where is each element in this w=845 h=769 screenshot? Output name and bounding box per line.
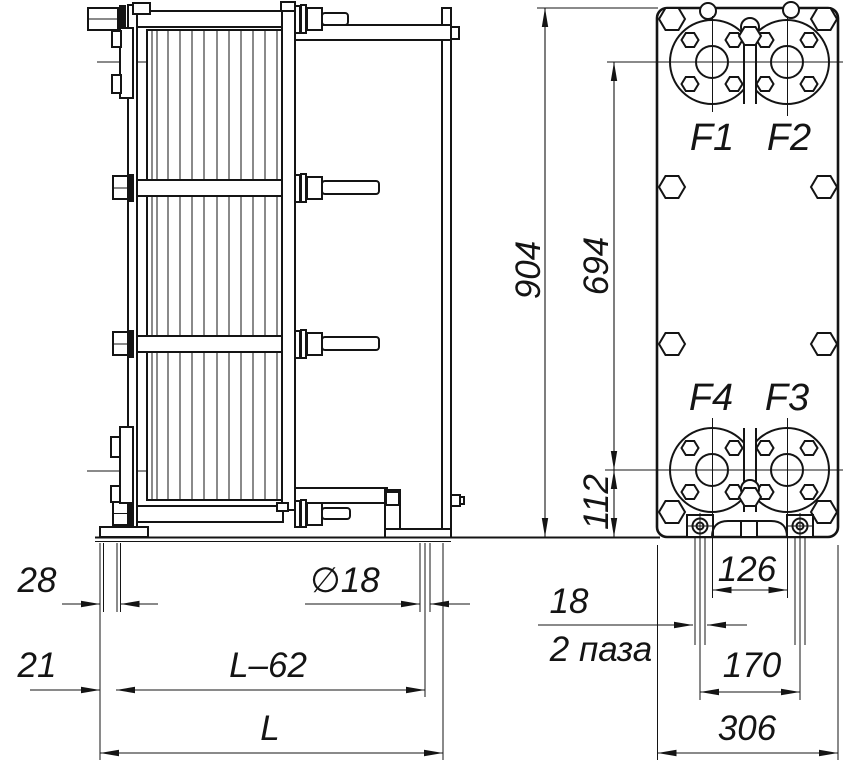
drawing-canvas: 28 ∅18 21 L–62 L 904 694 112 126 170 306… xyxy=(0,0,845,769)
dim-18-label: 18 xyxy=(550,582,589,621)
dim-170-label: 170 xyxy=(723,646,782,685)
heat-exchanger-drawing: 28 ∅18 21 L–62 L 904 694 112 126 170 306… xyxy=(0,0,845,769)
dim-21-label: 21 xyxy=(17,646,57,685)
port-f2-label: F2 xyxy=(767,117,811,159)
dim-126-label: 126 xyxy=(718,550,777,589)
slot-note-label: 2 паза xyxy=(549,630,653,669)
dim-306-label: 306 xyxy=(718,709,777,748)
dim-l62-label: L–62 xyxy=(229,646,307,685)
dim-112-label: 112 xyxy=(577,474,616,530)
dim-l-label: L xyxy=(260,709,279,748)
dim-28-label: 28 xyxy=(17,561,57,600)
port-f3-label: F3 xyxy=(765,377,809,419)
dimension-annotations: 28 ∅18 21 L–62 L 904 694 112 126 170 306… xyxy=(17,8,838,753)
dim-dia18-label: ∅18 xyxy=(310,561,380,600)
dim-904-label: 904 xyxy=(509,241,548,299)
dim-694-label: 694 xyxy=(577,237,616,295)
port-f4-label: F4 xyxy=(689,377,733,419)
port-f1-label: F1 xyxy=(690,117,734,159)
